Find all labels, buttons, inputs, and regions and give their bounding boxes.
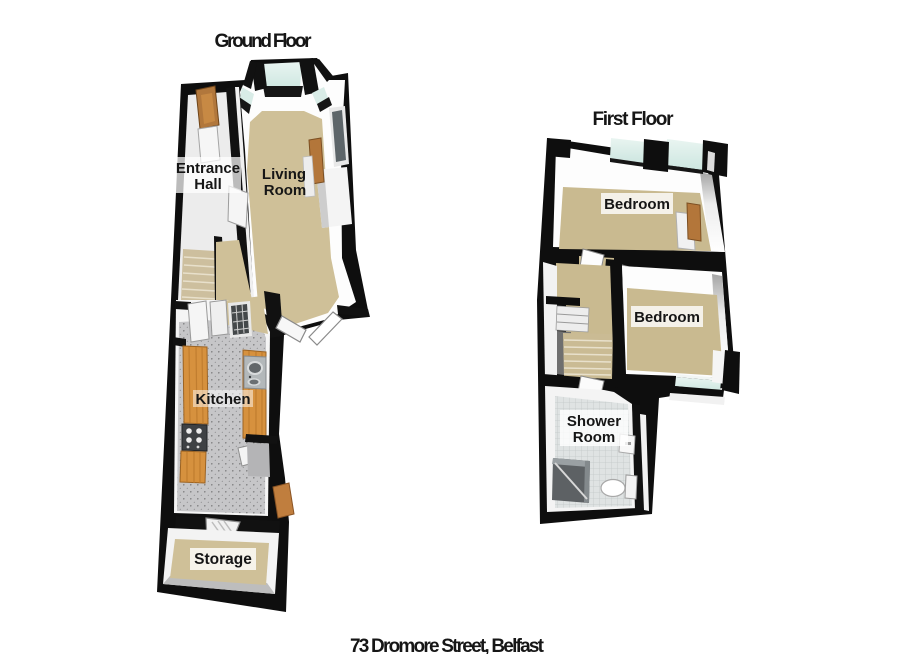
svg-text:Room: Room xyxy=(573,429,616,446)
svg-text:First Floor: First Floor xyxy=(593,109,675,130)
svg-text:Shower: Shower xyxy=(567,413,621,430)
svg-text:Bedroom: Bedroom xyxy=(634,309,700,326)
svg-text:Entrance: Entrance xyxy=(176,160,240,177)
svg-text:Kitchen: Kitchen xyxy=(195,391,250,408)
svg-text:Bedroom: Bedroom xyxy=(604,196,670,213)
svg-text:Storage: Storage xyxy=(194,551,252,568)
svg-text:73 Dromore Street, Belfast: 73 Dromore Street, Belfast xyxy=(350,636,545,654)
svg-text:Living: Living xyxy=(262,166,306,183)
svg-text:Ground Floor: Ground Floor xyxy=(215,31,313,52)
svg-text:Hall: Hall xyxy=(194,176,222,193)
svg-text:Room: Room xyxy=(264,182,307,199)
